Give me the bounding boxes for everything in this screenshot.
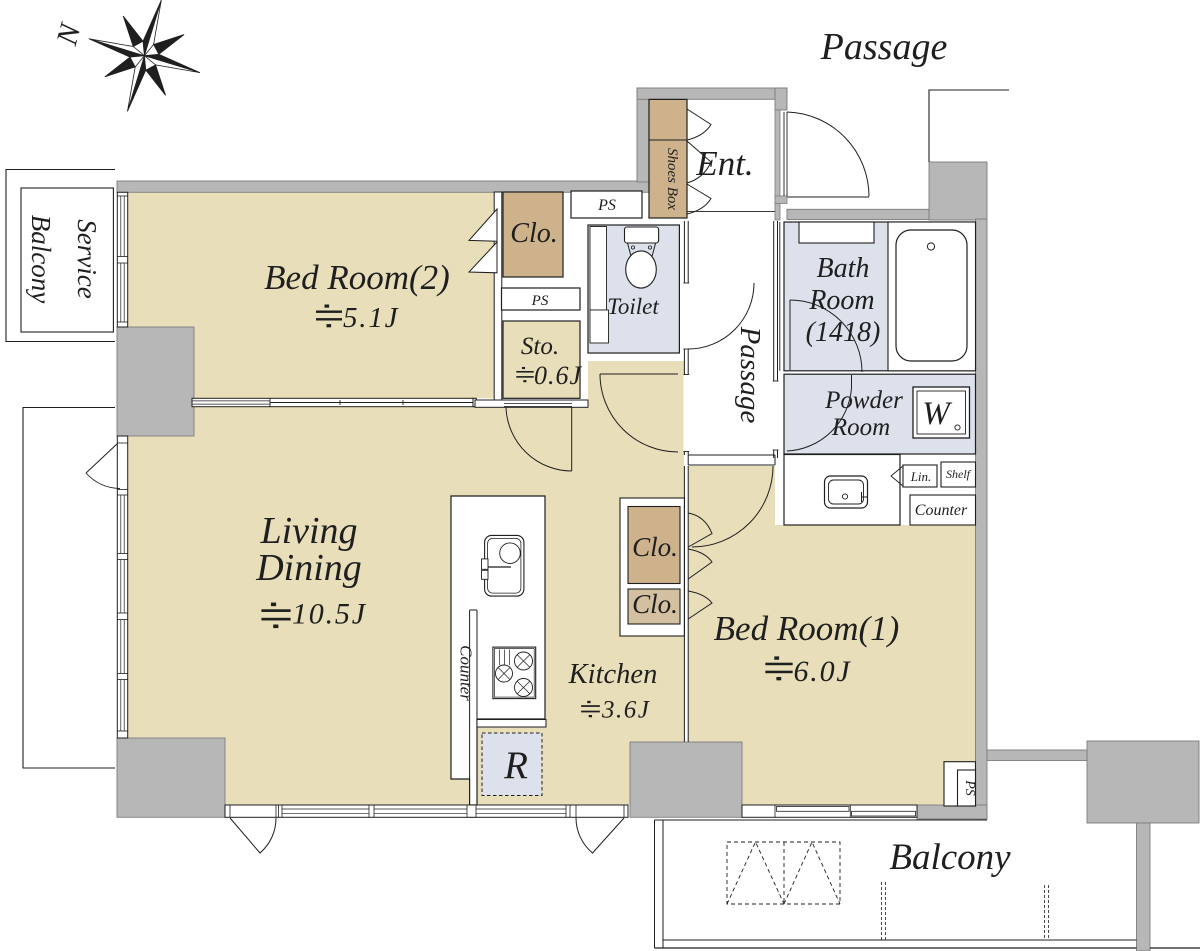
svg-text:Ent.: Ent. bbox=[695, 144, 753, 183]
svg-text:Passage: Passage bbox=[734, 326, 766, 424]
svg-text:Bath: Bath bbox=[817, 253, 870, 284]
svg-text:Shelf: Shelf bbox=[946, 467, 972, 481]
svg-text:Counter: Counter bbox=[915, 502, 968, 519]
svg-text:Shoes Box: Shoes Box bbox=[664, 148, 680, 210]
svg-text:PS: PS bbox=[531, 293, 549, 309]
svg-text:Sto.: Sto. bbox=[521, 333, 559, 360]
svg-text:0.6J: 0.6J bbox=[534, 361, 583, 390]
svg-text:R: R bbox=[503, 744, 528, 787]
svg-text:Counter: Counter bbox=[457, 645, 476, 701]
svg-text:W: W bbox=[922, 396, 952, 432]
svg-text:Room: Room bbox=[831, 414, 890, 441]
svg-text:3.6J: 3.6J bbox=[601, 697, 651, 724]
svg-text:Room: Room bbox=[808, 285, 874, 316]
svg-text:Passage: Passage bbox=[820, 26, 948, 68]
svg-text:5.1J: 5.1J bbox=[343, 302, 399, 334]
svg-text:Balcony: Balcony bbox=[889, 837, 1011, 878]
svg-text:Living: Living bbox=[259, 510, 357, 552]
svg-text:Clo.: Clo. bbox=[632, 532, 678, 562]
svg-text:Clo.: Clo. bbox=[510, 218, 557, 249]
svg-text:10.5J: 10.5J bbox=[292, 598, 367, 631]
svg-text:Lin.: Lin. bbox=[910, 469, 932, 484]
svg-text:Clo.: Clo. bbox=[632, 589, 678, 619]
svg-text:Kitchen: Kitchen bbox=[568, 659, 658, 690]
svg-text:Bed Room(2): Bed Room(2) bbox=[264, 258, 450, 297]
svg-text:(1418): (1418) bbox=[806, 317, 881, 348]
svg-text:6.0J: 6.0J bbox=[794, 655, 852, 688]
svg-text:PS: PS bbox=[962, 779, 977, 796]
svg-text:Toilet: Toilet bbox=[607, 294, 659, 319]
svg-text:Powder: Powder bbox=[824, 387, 903, 414]
svg-text:Dining: Dining bbox=[255, 547, 362, 589]
svg-text:Bed Room(1): Bed Room(1) bbox=[714, 609, 900, 648]
svg-text:PS: PS bbox=[597, 197, 616, 214]
